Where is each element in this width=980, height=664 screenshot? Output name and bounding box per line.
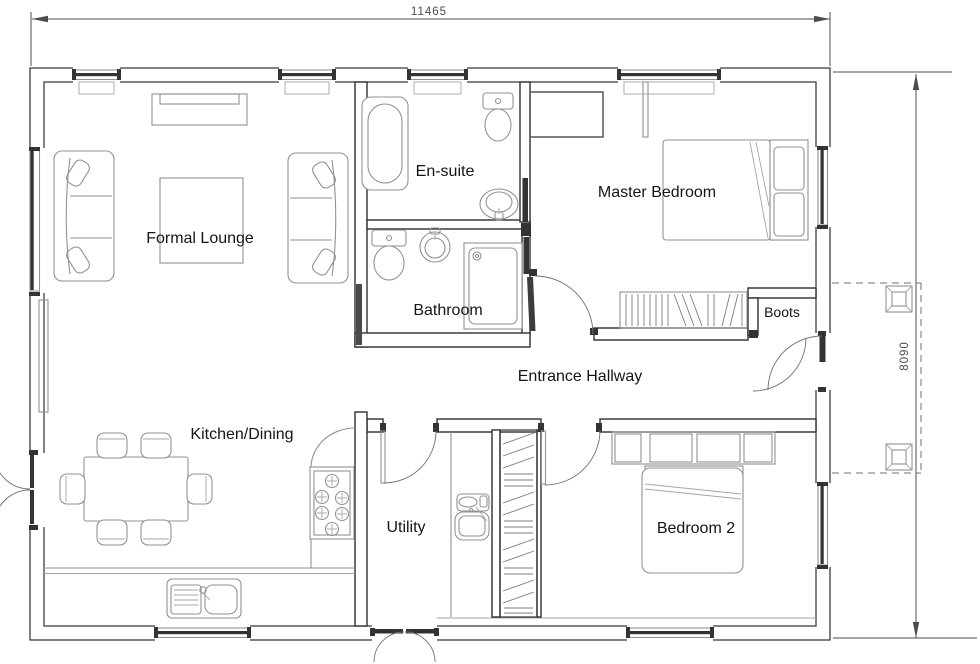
dining-table <box>84 457 188 521</box>
bathroom-door <box>524 237 530 274</box>
porch-outline <box>832 283 921 473</box>
bathtub <box>362 97 408 190</box>
room-label-boots: Boots <box>764 304 800 320</box>
airing-cupboard <box>500 430 537 617</box>
window <box>617 67 721 95</box>
wash-basin <box>480 189 518 220</box>
window <box>815 146 832 229</box>
kitchen-sink <box>167 579 241 618</box>
radiator <box>356 284 362 345</box>
master-bedroom-door <box>527 269 598 335</box>
room-label-en-suite: En-suite <box>416 163 475 180</box>
dining-chair <box>141 520 171 545</box>
room-label-master-bedroom: Master Bedroom <box>598 184 716 201</box>
radiator <box>620 292 747 328</box>
dimension-depth: 8090 <box>833 72 977 638</box>
room-label-bedroom-2: Bedroom 2 <box>657 520 735 537</box>
wardrobe <box>530 92 603 137</box>
window <box>278 67 336 95</box>
dimension-width: 11465 <box>31 6 830 66</box>
en-suite-door <box>523 178 529 222</box>
utility-door <box>380 423 439 483</box>
entrance-door <box>768 331 832 392</box>
dining-chair <box>97 520 127 545</box>
dimension-width-label: 11465 <box>411 6 447 18</box>
french-door <box>0 450 45 530</box>
utility-sink <box>455 494 489 540</box>
room-label-kitchen-dining: Kitchen/Dining <box>190 426 293 443</box>
sofa <box>54 151 114 281</box>
porch-post <box>886 444 912 470</box>
room-label-entrance-hallway: Entrance Hallway <box>518 368 643 385</box>
dimension-depth-label: 8090 <box>899 341 911 371</box>
wall-stub <box>643 82 648 137</box>
coffee-table <box>160 178 243 263</box>
wardrobe <box>612 432 775 464</box>
boots-door <box>749 330 806 391</box>
dining-chair <box>97 433 127 458</box>
window <box>815 482 832 569</box>
bedroom-2-door <box>538 423 602 485</box>
window <box>154 624 251 641</box>
room-label-formal-lounge: Formal Lounge <box>146 230 254 247</box>
toilet <box>372 230 406 280</box>
window <box>626 624 714 641</box>
floor-plan-page: 11465 8090 <box>0 0 980 664</box>
french-door <box>370 624 439 662</box>
room-label-bathroom: Bathroom <box>413 302 482 319</box>
dining-chair <box>141 433 171 458</box>
toilet <box>483 93 513 141</box>
tv-unit <box>152 94 247 125</box>
sofa <box>288 153 348 283</box>
dining-chair <box>187 474 212 504</box>
pedestal-sink <box>420 228 450 262</box>
floor-plan-drawing: 11465 8090 <box>0 0 980 664</box>
room-label-utility: Utility <box>386 519 425 536</box>
window <box>72 67 121 95</box>
window <box>29 147 46 296</box>
dining-chair <box>60 474 85 504</box>
hob <box>310 467 354 539</box>
porch-post <box>886 286 912 312</box>
window <box>407 67 468 95</box>
